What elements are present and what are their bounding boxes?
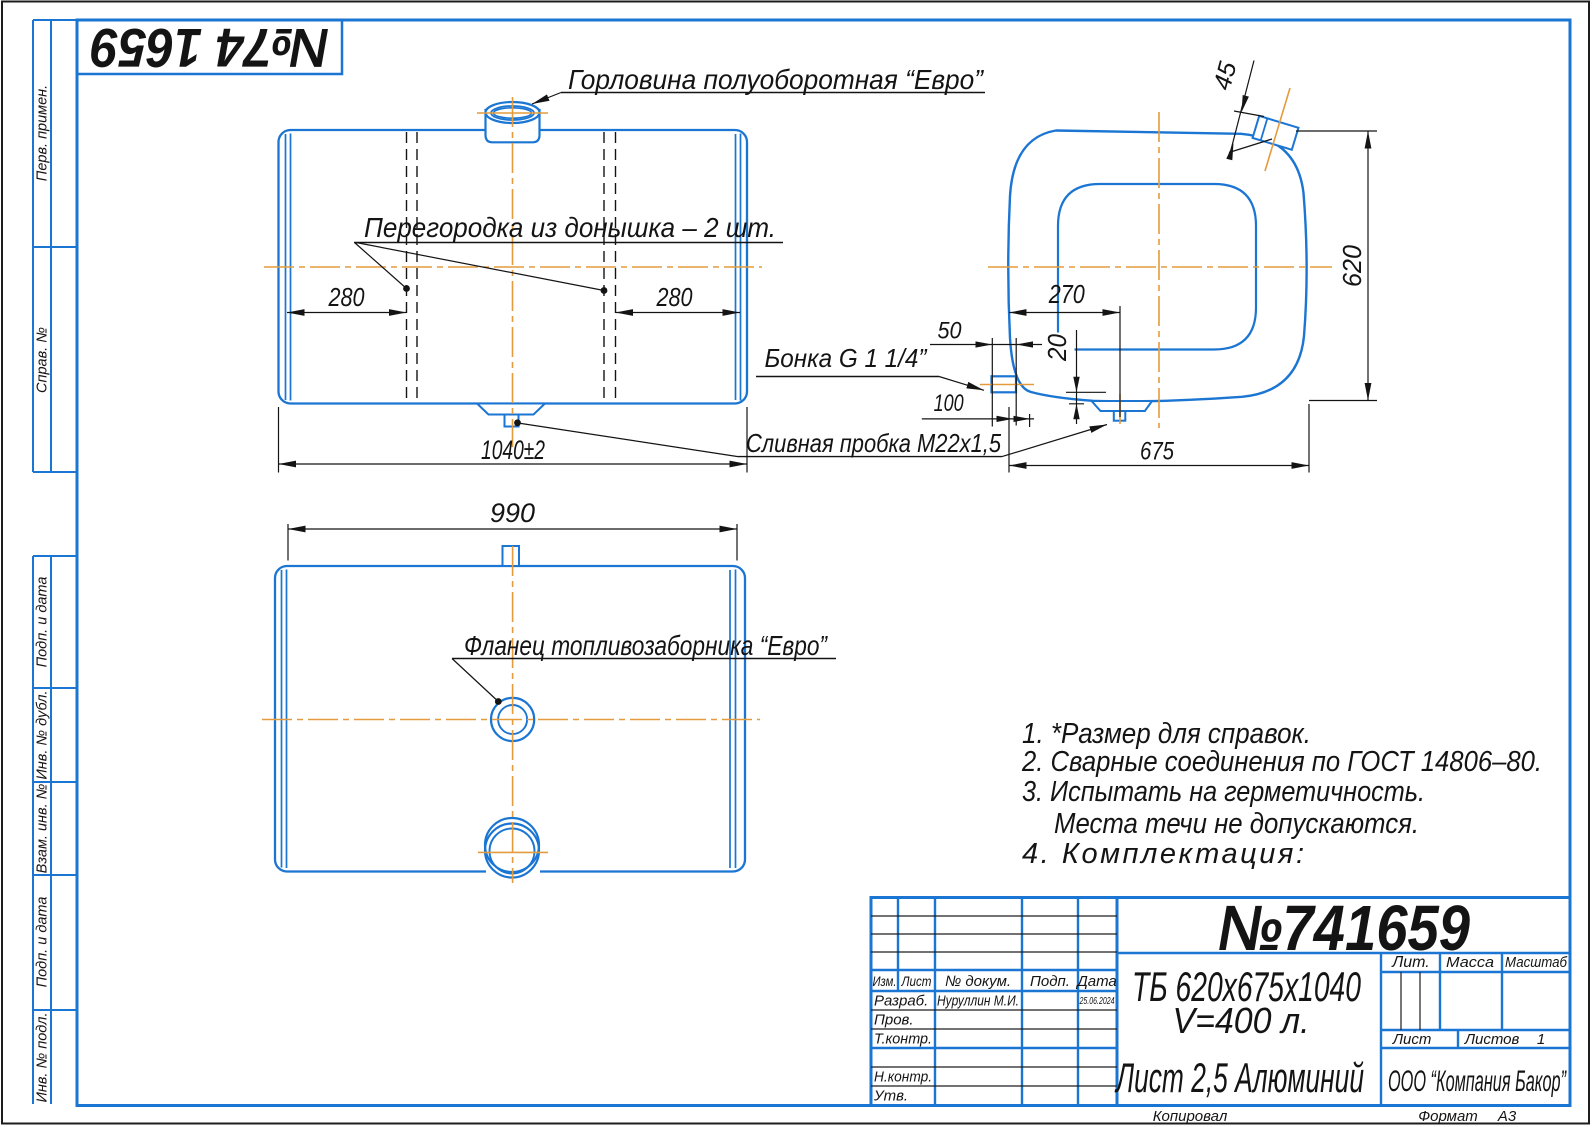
svg-text:Копировал: Копировал	[1153, 1108, 1228, 1125]
svg-text:Инв. № подл.: Инв. № подл.	[35, 1013, 51, 1103]
svg-text:270: 270	[1048, 279, 1085, 309]
svg-text:25.06.2024: 25.06.2024	[1079, 996, 1115, 1007]
svg-text:Изм.: Изм.	[873, 974, 897, 989]
svg-text:Разраб.: Разраб.	[874, 993, 928, 1010]
svg-text:№741659: №741659	[1218, 892, 1470, 964]
svg-text:675: 675	[1140, 438, 1174, 466]
svg-text:Дата: Дата	[1075, 973, 1117, 990]
svg-text:Лист: Лист	[1392, 1031, 1432, 1048]
svg-text:Перв. примен.: Перв. примен.	[35, 85, 51, 181]
svg-text:Фланец топливозаборника “Евро”: Фланец топливозаборника “Евро”	[464, 630, 829, 661]
svg-text:Листов: Листов	[1464, 1031, 1520, 1048]
svg-text:Подп. и дата: Подп. и дата	[35, 577, 51, 668]
svg-text:А3: А3	[1497, 1108, 1517, 1125]
svg-text:№ докум.: № докум.	[945, 973, 1011, 990]
svg-text:Бонка G 1 1/4”: Бонка G 1 1/4”	[765, 343, 928, 373]
svg-text:Пров.: Пров.	[874, 1012, 914, 1029]
svg-text:Н.контр.: Н.контр.	[874, 1069, 932, 1086]
svg-text:990: 990	[490, 498, 535, 528]
svg-text:Подп. и дата: Подп. и дата	[35, 897, 51, 988]
svg-text:50: 50	[938, 318, 963, 345]
svg-text:1040±2: 1040±2	[481, 435, 545, 465]
svg-text:Лист 2,5 Алюминий: Лист 2,5 Алюминий	[1114, 1054, 1364, 1101]
svg-text:280: 280	[328, 282, 365, 312]
svg-text:ООО “Компания Бакор”: ООО “Компания Бакор”	[1388, 1065, 1567, 1098]
svg-text:620: 620	[1337, 244, 1367, 287]
svg-text:Т.контр.: Т.контр.	[874, 1031, 932, 1048]
svg-text:Перегородка из донышка – 2 шт.: Перегородка из донышка – 2 шт.	[364, 212, 776, 243]
svg-text:Взам. инв. №: Взам. инв. №	[35, 783, 51, 873]
svg-text:Места течи не допускаются.: Места течи не допускаются.	[1054, 808, 1419, 840]
svg-text:4. Комплектация:: 4. Комплектация:	[1022, 838, 1304, 870]
svg-text:Формат: Формат	[1418, 1108, 1478, 1125]
svg-text:Нуруллин М.И.: Нуруллин М.И.	[937, 993, 1019, 1010]
svg-text:100: 100	[934, 390, 964, 417]
svg-text:2. Сварные соединения по ГОСТ: 2. Сварные соединения по ГОСТ 14806–80.	[1021, 746, 1542, 778]
svg-text:20: 20	[1042, 333, 1072, 361]
svg-text:№74 1659: №74 1659	[91, 17, 329, 79]
svg-text:Масса: Масса	[1446, 954, 1494, 971]
svg-text:Утв.: Утв.	[873, 1088, 908, 1105]
svg-text:280: 280	[656, 282, 693, 312]
svg-text:V=400 л.: V=400 л.	[1173, 1000, 1310, 1041]
svg-text:Справ. №: Справ. №	[35, 327, 51, 393]
svg-text:Горловина полуоборотная “Евро”: Горловина полуоборотная “Евро”	[568, 64, 985, 95]
svg-text:Лист: Лист	[901, 974, 932, 989]
svg-text:Сливная пробка М22х1,5: Сливная пробка М22х1,5	[746, 428, 1001, 458]
svg-text:1: 1	[1537, 1031, 1545, 1048]
svg-text:3. Испытать на герметичность.: 3. Испытать на герметичность.	[1022, 776, 1425, 808]
svg-text:Лит.: Лит.	[1391, 954, 1429, 971]
svg-text:Подп.: Подп.	[1030, 973, 1070, 990]
svg-text:Масштаб: Масштаб	[1505, 954, 1567, 971]
svg-text:Инв. № дубл.: Инв. № дубл.	[35, 690, 51, 779]
